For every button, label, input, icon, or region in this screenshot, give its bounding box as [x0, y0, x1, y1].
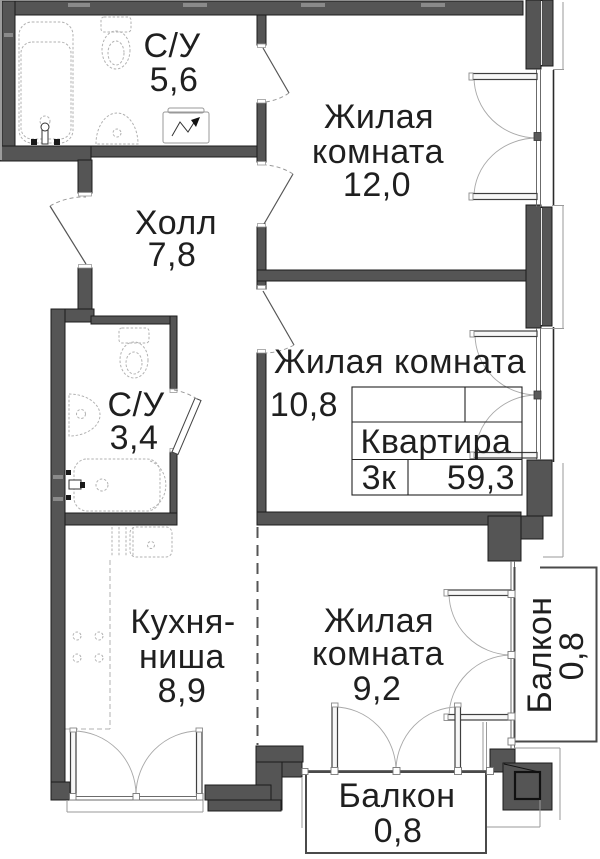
svg-text:5,6: 5,6 [150, 61, 199, 99]
svg-text:8,9: 8,9 [158, 672, 207, 710]
svg-text:Жилая: Жилая [324, 98, 434, 136]
svg-text:0,8: 0,8 [374, 812, 423, 850]
svg-text:С/У: С/У [143, 27, 200, 65]
svg-text:ниша: ниша [139, 638, 225, 676]
svg-text:комната: комната [312, 635, 444, 673]
svg-text:10,8: 10,8 [270, 386, 338, 424]
svg-text:9,2: 9,2 [353, 670, 402, 708]
svg-text:3,4: 3,4 [110, 419, 159, 457]
svg-text:59,3: 59,3 [447, 459, 515, 497]
svg-text:Кухня-: Кухня- [130, 603, 235, 641]
svg-text:3к: 3к [362, 459, 397, 497]
svg-text:Квартира: Квартира [361, 423, 512, 461]
svg-text:Балкон: Балкон [338, 777, 455, 815]
svg-text:12,0: 12,0 [343, 166, 411, 204]
svg-text:Жилая комната: Жилая комната [274, 343, 526, 381]
svg-text:0,8: 0,8 [553, 632, 591, 681]
svg-text:7,8: 7,8 [148, 236, 197, 274]
